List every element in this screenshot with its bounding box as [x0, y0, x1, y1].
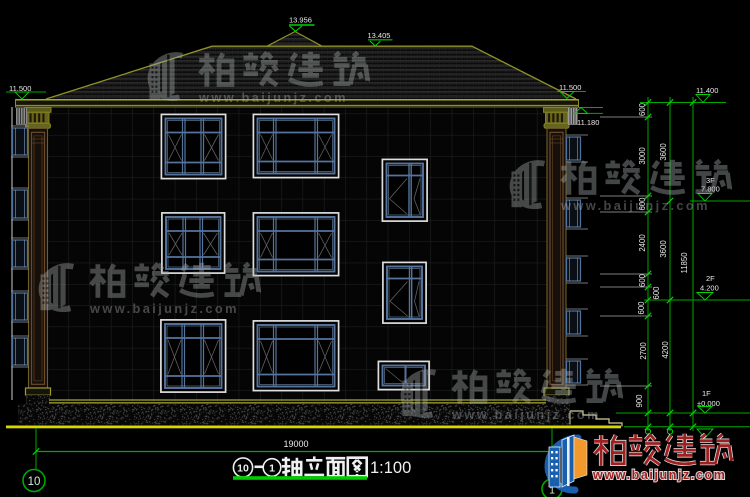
svg-text:600: 600	[638, 102, 647, 116]
svg-text:600: 600	[637, 301, 646, 315]
svg-text:600: 600	[638, 273, 647, 287]
svg-text:11.180: 11.180	[577, 118, 599, 127]
svg-text:www.baijunjz.com: www.baijunjz.com	[592, 468, 726, 482]
svg-text:3000: 3000	[638, 147, 647, 165]
svg-text:11.500: 11.500	[559, 83, 581, 92]
svg-text:4200: 4200	[661, 341, 670, 359]
svg-text:3600: 3600	[659, 143, 668, 161]
svg-text:1:100: 1:100	[370, 459, 411, 477]
svg-text:1F: 1F	[702, 389, 711, 398]
svg-text:11.400: 11.400	[696, 86, 718, 95]
svg-text:www.baijunjz.com: www.baijunjz.com	[451, 407, 601, 422]
svg-text:2700: 2700	[639, 342, 648, 360]
svg-text:10: 10	[28, 476, 41, 488]
svg-text:1: 1	[269, 463, 275, 475]
svg-text:900: 900	[635, 394, 644, 408]
svg-text:600: 600	[652, 286, 661, 300]
svg-text:www.baijunjz.com: www.baijunjz.com	[560, 198, 710, 213]
svg-text:10: 10	[237, 463, 249, 475]
svg-text:3600: 3600	[659, 240, 668, 258]
svg-text:13.956: 13.956	[289, 16, 312, 25]
svg-text:4.200: 4.200	[700, 284, 719, 293]
svg-text:19000: 19000	[283, 439, 308, 449]
svg-text:11850: 11850	[680, 252, 689, 274]
svg-text:2F: 2F	[706, 274, 715, 283]
svg-text:www.baijunjz.com: www.baijunjz.com	[89, 301, 239, 316]
svg-text:www.baijunjz.com: www.baijunjz.com	[198, 90, 348, 105]
svg-text:2400: 2400	[638, 234, 647, 252]
svg-text:13.405: 13.405	[368, 31, 391, 40]
